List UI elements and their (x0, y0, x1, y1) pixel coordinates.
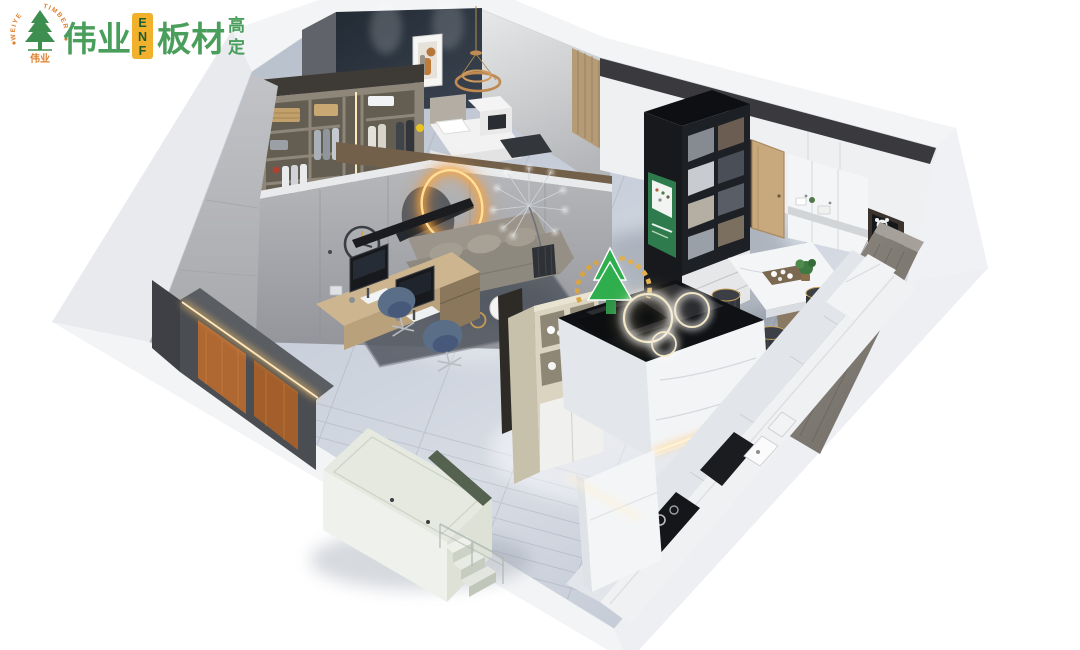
interior-door (752, 140, 784, 238)
enf-letter-n: N (138, 30, 147, 44)
emblem-subtext: 伟业 (30, 52, 50, 65)
enf-letter-e: E (138, 16, 146, 30)
wordmark-stack-top: 高 (228, 15, 245, 35)
wordmark-part2: 板材 (157, 21, 225, 59)
green-brand-poster (648, 172, 676, 258)
red-vase (273, 167, 280, 174)
enf-letter-f: F (139, 44, 147, 58)
wordmark-stack-bottom: 定 (228, 37, 245, 57)
wordmark-part1: 伟业 (63, 21, 131, 59)
enf-badge: E N F (132, 13, 153, 59)
yellow-kettle (416, 124, 424, 132)
wood-slat-panel (572, 48, 602, 150)
interior-render: WEIYE TIMBER 伟业 伟业 E N F 板材 (0, 0, 1080, 650)
render-canvas: WEIYE TIMBER 伟业 伟业 E N F 板材 (0, 0, 1080, 650)
